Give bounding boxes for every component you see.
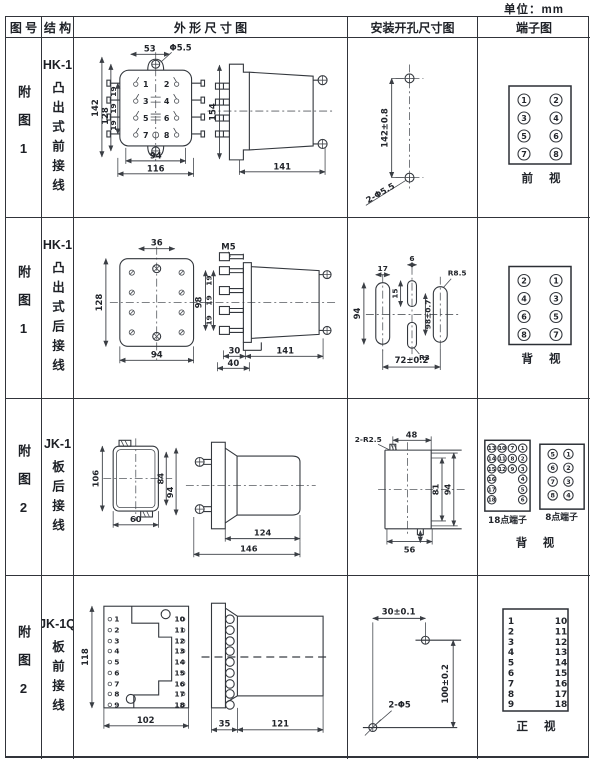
jk1-terminal-drawing: 13 14 15 16 17 18 10 11 12 7 8 9 1 2 3 4: [478, 399, 590, 575]
front-view: 106 84 94 60: [90, 438, 176, 527]
dim-84: 84: [155, 473, 165, 485]
t18-12: 12: [498, 467, 506, 473]
t18-6: 6: [521, 498, 525, 504]
tq-12: 12: [555, 638, 568, 648]
dim-19b: 19: [109, 103, 118, 113]
terminal-studs: [219, 253, 243, 335]
dim-19c: 19: [204, 315, 213, 325]
row2-fig-no: 附图1: [6, 218, 42, 399]
dim-154: 154: [207, 103, 217, 121]
fp-15: 15: [174, 668, 184, 677]
row2-terminal-cell: 2 4 6 8 1 3 5 7 背 视: [478, 218, 590, 399]
row3-terminal-cell: 13 14 15 16 17 18 10 11 12 7 8 9 1 2 3 4: [478, 399, 590, 576]
pin-5: 5: [143, 114, 149, 123]
dim-94: 94: [352, 307, 362, 319]
tq-17: 17: [555, 690, 568, 700]
manual-page: 单位：mm 图 号 结 构 外 形 尺 寸 图 安装开孔尺寸图 端子图 附图1 …: [0, 0, 602, 767]
col-header-terminal: 端子图: [478, 17, 590, 38]
tq-9: 9: [508, 700, 514, 710]
row1-outline-cell: 1 2 3 4 5 6 7 8 53 Φ5.5 142 128: [74, 38, 348, 218]
dim-19a: 19: [204, 275, 213, 285]
row4-fig-label: 附图2: [14, 625, 33, 711]
side-view: 154 141: [207, 64, 333, 175]
dim-48: 48: [406, 429, 418, 439]
term-l4: 7: [521, 150, 527, 159]
term-l1: 1: [521, 96, 527, 105]
fp-8: 8: [114, 689, 119, 698]
term-l4: 8: [521, 331, 527, 340]
dim-19a: 19: [109, 86, 118, 96]
fp-7: 7: [114, 679, 119, 688]
tq-4: 4: [508, 648, 514, 658]
pin-7: 7: [143, 131, 149, 140]
dim-118: 118: [80, 648, 90, 666]
tq-16: 16: [555, 679, 568, 689]
dim-r85: R8.5: [448, 269, 467, 278]
row4-structure: JK-1Q 板前接线: [42, 576, 74, 759]
dim-121: 121: [271, 718, 289, 728]
view-label: 背 视: [521, 352, 566, 366]
term-l2: 3: [521, 114, 527, 123]
hk1-front-mounting-drawing: 142±0.8 2-Φ5.5: [348, 38, 477, 217]
t18-4: 4: [521, 477, 525, 483]
dim-30: 30: [229, 345, 241, 355]
terminal-circles: 1 3 5 7 2 4 6 8: [518, 94, 562, 160]
unit-label: 单位：mm: [504, 1, 564, 17]
t8-6: 6: [550, 464, 555, 472]
row4-mounting-cell: 30±0.1 100±0.2 2-Φ5: [348, 576, 478, 759]
dim-35: 35: [219, 718, 231, 728]
terminal-18pt: 13 14 15 16 17 18 10 11 12 7 8 9 1 2 3 4: [487, 444, 526, 504]
dim-94: 94: [165, 486, 175, 498]
front-view: 1 2 3 4 5 6 7 8 53 Φ5.5 142 128: [90, 42, 205, 177]
dim-19b: 19: [204, 295, 213, 305]
side-view: M5 98: [194, 242, 336, 372]
dim-102: 102: [137, 715, 155, 725]
terminal-8pt: 5 6 7 8 1 2 3 4: [548, 449, 573, 500]
dim-116: 116: [147, 163, 165, 173]
row4-wiring: 板前接线: [48, 640, 67, 718]
jk1q-outline-drawing: 1 2 3 4 5 6 7 8 9 10 11 12 13: [74, 576, 347, 759]
tq-13: 13: [555, 648, 568, 658]
dim-142-08: 142±0.8: [380, 108, 390, 148]
t8-7: 7: [550, 478, 554, 486]
dim-phi55: Φ5.5: [170, 42, 192, 52]
front-view: 1 2 3 4 5 6 7 8 9 10 11 12 13: [80, 606, 189, 729]
tq-2: 2: [508, 627, 514, 637]
dim-128: 128: [94, 294, 104, 312]
t18-7: 7: [510, 446, 514, 452]
fp-13: 13: [174, 647, 184, 656]
col-header-structure: 结 构: [42, 17, 74, 38]
term-r3: 5: [553, 313, 559, 322]
dim-146: 146: [240, 543, 258, 553]
fp-3: 3: [114, 637, 119, 646]
dim-m5: M5: [221, 242, 235, 252]
label-8pt: 8点端子: [545, 511, 578, 523]
row4-fig-no: 附图2: [6, 576, 42, 759]
fp-9: 9: [114, 700, 119, 709]
t18-13: 13: [488, 446, 496, 452]
t18-3: 3: [521, 467, 525, 473]
dim-19c: 19: [109, 120, 118, 130]
tq-14: 14: [555, 659, 568, 669]
pin-2: 2: [164, 80, 170, 89]
fp-11: 11: [174, 626, 184, 635]
dim-100-02: 100±0.2: [440, 664, 450, 704]
dimension-table: 图 号 结 构 外 形 尺 寸 图 安装开孔尺寸图 端子图 附图1 HK-1 凸…: [5, 16, 589, 758]
t18-18: 18: [488, 498, 496, 504]
row2-fig-label: 附图1: [14, 265, 33, 351]
dim-141: 141: [276, 345, 294, 355]
view-label: 前 视: [521, 171, 566, 185]
row2-model: HK-1: [43, 238, 72, 252]
hk1-front-terminal-drawing: 1 3 5 7 2 4 6 8 前 视: [478, 38, 590, 217]
terminal-numbers-left: 1 2 3 4 5 6 7 8 9: [508, 617, 514, 710]
t18-1: 1: [521, 446, 525, 452]
dim-53: 53: [144, 43, 156, 53]
label-18pt: 18点端子: [488, 514, 527, 526]
term-r3: 6: [553, 132, 559, 141]
dim-98: 98: [194, 297, 204, 309]
terminal-numbers-right: 10 11 12 13 14 15 16 17 18: [555, 617, 568, 710]
t8-3: 3: [566, 478, 570, 486]
tq-8: 8: [508, 690, 514, 700]
term-l3: 5: [521, 132, 527, 141]
fp-2: 2: [114, 626, 119, 635]
dim-2phi55: 2-Φ5.5: [364, 181, 396, 205]
jk1-mounting-drawing: 48 56 81 94 2-R2.5: [348, 399, 477, 575]
row3-outline-cell: 106 84 94 60: [74, 399, 348, 576]
dim-30-01: 30±0.1: [382, 606, 416, 616]
dim-6: 6: [409, 254, 414, 263]
dim-36: 36: [151, 238, 163, 248]
dim-94: 94: [150, 150, 162, 160]
t8-4: 4: [566, 492, 571, 500]
dim-141: 141: [273, 161, 291, 171]
dim-81: 81: [431, 483, 441, 495]
tq-15: 15: [555, 669, 568, 679]
fp-5: 5: [114, 658, 119, 667]
t8-5: 5: [550, 450, 554, 458]
col-header-fig-no: 图 号: [6, 17, 42, 38]
dim-2phi5: 2-Φ5: [388, 700, 411, 710]
row1-model: HK-1: [43, 58, 72, 72]
hk1-front-outline-drawing: 1 2 3 4 5 6 7 8 53 Φ5.5 142 128: [74, 38, 347, 217]
tq-6: 6: [508, 669, 514, 679]
t8-1: 1: [566, 450, 570, 458]
term-r2: 3: [553, 295, 559, 304]
term-l1: 2: [521, 277, 527, 286]
hk1-rear-mounting-drawing: 17 6 15 94 98±0.7 R8.5 R3 72±0.2: [348, 218, 477, 398]
t8-8: 8: [550, 492, 555, 500]
terminal-bumps: [226, 615, 235, 709]
term-r4: 7: [553, 331, 559, 340]
t18-2: 2: [521, 456, 525, 462]
tq-10: 10: [555, 617, 568, 627]
dim-106: 106: [90, 470, 100, 488]
jk1-outline-drawing: 106 84 94 60: [74, 399, 347, 575]
hk1-rear-terminal-drawing: 2 4 6 8 1 3 5 7 背 视: [478, 218, 590, 398]
row2-wiring: 凸出式后接线: [48, 261, 67, 378]
rear-view: 36 128 94: [94, 238, 204, 364]
pin-clips: [134, 77, 179, 138]
t18-14: 14: [488, 456, 496, 462]
side-view: 35 121: [202, 603, 332, 733]
col-header-outline: 外 形 尺 寸 图: [74, 17, 348, 38]
dim-56: 56: [404, 544, 416, 554]
t18-15: 15: [488, 467, 496, 473]
fp-16: 16: [174, 679, 184, 688]
row3-model: JK-1: [44, 437, 71, 451]
t18-9: 9: [510, 467, 514, 473]
dim-142: 142: [90, 99, 100, 117]
row1-fig-no: 附图1: [6, 38, 42, 218]
fp-4: 4: [114, 647, 119, 656]
pin-8: 8: [164, 131, 170, 140]
pin-4: 4: [164, 97, 170, 106]
row2-outline-cell: 36 128 94 M5: [74, 218, 348, 399]
row1-structure: HK-1 凸出式前接线: [42, 38, 74, 218]
row2-structure: HK-1 凸出式后接线: [42, 218, 74, 399]
pin-1: 1: [143, 80, 149, 89]
pin-3: 3: [143, 97, 149, 106]
fp-17: 17: [174, 689, 184, 698]
fp-1: 1: [114, 615, 119, 624]
view-label: 背 视: [516, 535, 560, 549]
dim-2r25: 2-R2.5: [355, 435, 382, 444]
dim-60: 60: [130, 514, 142, 524]
term-r1: 2: [553, 96, 559, 105]
hk1-rear-outline-drawing: 36 128 94 M5: [74, 218, 347, 398]
side-view: 124 146: [186, 442, 316, 557]
row4-outline-cell: 1 2 3 4 5 6 7 8 9 10 11 12 13: [74, 576, 348, 759]
t18-17: 17: [488, 487, 496, 493]
dim-124: 124: [254, 528, 272, 538]
row3-fig-no: 附图2: [6, 399, 42, 576]
dim-94: 94: [151, 349, 163, 359]
view-label: 正 视: [516, 719, 561, 733]
dim-40: 40: [228, 358, 240, 368]
row1-fig-label: 附图1: [14, 85, 33, 171]
fp-12: 12: [174, 637, 184, 646]
dim-72-02: 72±0.2: [395, 355, 429, 365]
tq-18: 18: [555, 700, 568, 710]
t18-16: 16: [488, 477, 496, 483]
fp-14: 14: [174, 658, 184, 667]
term-l2: 4: [521, 295, 527, 304]
terminal-circles: 2 4 6 8 1 3 5 7: [518, 275, 562, 341]
fp-10: 10: [174, 615, 184, 624]
dim-94: 94: [442, 483, 452, 495]
row3-mounting-cell: 48 56 81 94 2-R2.5: [348, 399, 478, 576]
row4-terminal-cell: 1 2 3 4 5 6 7 8 9 10 11 12 13 14 15: [478, 576, 590, 759]
term-l3: 6: [521, 313, 527, 322]
term-r4: 8: [553, 150, 559, 159]
t18-10: 10: [498, 446, 506, 452]
row4-model: JK-1Q: [42, 617, 74, 631]
row1-terminal-cell: 1 3 5 7 2 4 6 8 前 视: [478, 38, 590, 218]
dim-15: 15: [391, 288, 400, 298]
dim-17: 17: [378, 264, 388, 273]
t18-11: 11: [498, 456, 506, 462]
fp-6: 6: [114, 668, 119, 677]
term-r2: 4: [553, 114, 559, 123]
t8-2: 2: [566, 464, 570, 472]
tq-7: 7: [508, 679, 514, 689]
tq-3: 3: [508, 638, 514, 648]
row3-fig-label: 附图2: [14, 444, 33, 530]
t18-8: 8: [510, 456, 514, 462]
pins-left: 1 2 3 4 5 6 7 8 9: [108, 615, 119, 710]
fp-18: 18: [174, 700, 184, 709]
row3-wiring: 板后接线: [48, 460, 67, 538]
jk1q-mounting-drawing: 30±0.1 100±0.2 2-Φ5: [348, 576, 477, 759]
row3-structure: JK-1 板后接线: [42, 399, 74, 576]
row1-wiring: 凸出式前接线: [48, 81, 67, 198]
pin-6: 6: [164, 114, 170, 123]
t18-5: 5: [521, 487, 525, 493]
row2-mounting-cell: 17 6 15 94 98±0.7 R8.5 R3 72±0.2: [348, 218, 478, 399]
col-header-mounting: 安装开孔尺寸图: [348, 17, 478, 38]
tq-11: 11: [555, 627, 568, 637]
dim-98-07: 98±0.7: [423, 300, 432, 330]
tq-5: 5: [508, 659, 514, 669]
row1-mounting-cell: 142±0.8 2-Φ5.5: [348, 38, 478, 218]
jk1q-terminal-drawing: 1 2 3 4 5 6 7 8 9 10 11 12 13 14 15: [478, 576, 590, 759]
term-r1: 1: [553, 277, 559, 286]
pins-right: 10 11 12 13 14 15 16 17 18: [174, 615, 184, 710]
terminal-studs: [215, 83, 229, 137]
tq-1: 1: [508, 617, 514, 627]
